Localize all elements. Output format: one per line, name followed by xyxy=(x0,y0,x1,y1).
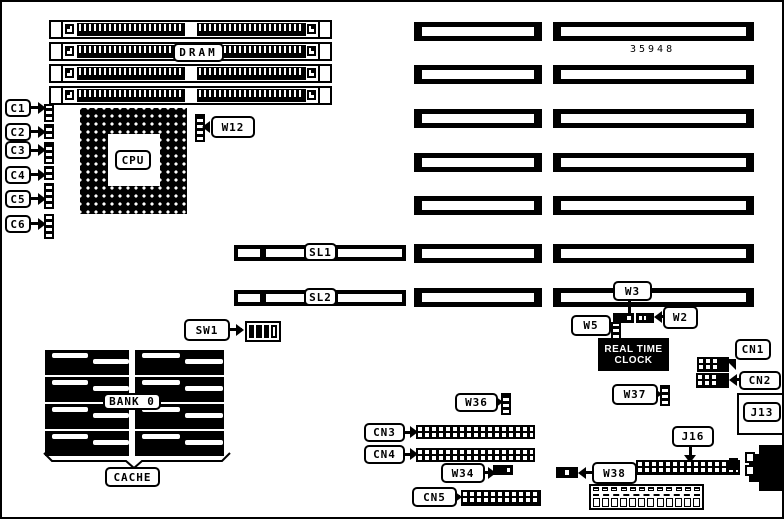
simm-socket-1 xyxy=(49,20,332,39)
simm-latch-icon xyxy=(307,24,316,34)
simm-pin-comb xyxy=(197,23,306,36)
simm-pin-comb xyxy=(77,67,185,80)
dram-label: DRAM xyxy=(173,43,224,62)
w37-label: W37 xyxy=(612,384,658,405)
cn3-label: CN3 xyxy=(364,423,405,442)
expansion-slot xyxy=(553,288,754,307)
simm-pin-comb xyxy=(197,89,306,102)
simm-latch-icon xyxy=(307,90,316,100)
power-connector xyxy=(589,484,704,510)
simm-pin-comb xyxy=(77,23,185,36)
simm-latch-icon xyxy=(65,24,74,34)
real-time-clock: REAL TIME CLOCK xyxy=(598,338,669,371)
w5-label: W5 xyxy=(571,315,611,336)
c5-label: C5 xyxy=(5,190,31,208)
c1-label: C1 xyxy=(5,99,31,117)
simm-latch-icon xyxy=(65,46,74,56)
dip-switch-segment xyxy=(271,325,277,338)
expansion-slot xyxy=(414,244,542,263)
cn2-label: CN2 xyxy=(739,371,781,390)
simm-divider xyxy=(318,22,320,37)
simm-latch-icon xyxy=(307,68,316,78)
expansion-slot xyxy=(553,196,754,215)
simm-divider xyxy=(61,88,63,103)
expansion-slot xyxy=(414,65,542,84)
simm-divider xyxy=(318,88,320,103)
pointer-line xyxy=(628,299,631,314)
w2-label: W2 xyxy=(663,306,698,329)
board-component xyxy=(729,458,738,470)
c3-connector xyxy=(44,142,54,164)
c4-connector xyxy=(44,166,54,180)
simm-divider xyxy=(61,22,63,37)
j13-label: J13 xyxy=(743,402,781,422)
simm-pin-comb xyxy=(77,89,185,102)
expansion-slot xyxy=(414,109,542,128)
w12-label: W12 xyxy=(211,116,255,138)
expansion-slot xyxy=(414,288,542,307)
cn4-label: CN4 xyxy=(364,445,405,464)
cn5-header xyxy=(461,490,541,506)
rtc-text-line2: CLOCK xyxy=(614,355,652,366)
motherboard-diagram: DRAM 35948 SL1 SL2 C1 C2 C3 C4 C5 C6 CPU xyxy=(0,0,784,519)
w38-jumper xyxy=(556,467,578,478)
power-pin-row-bottom xyxy=(593,498,700,507)
callout-tip xyxy=(202,121,210,133)
expansion-slot xyxy=(553,22,754,41)
simm-divider xyxy=(318,66,320,81)
j16-label: J16 xyxy=(672,426,714,447)
expansion-slot xyxy=(553,109,754,128)
c6-label: C6 xyxy=(5,215,31,233)
power-connector-divider xyxy=(593,494,700,496)
simm-divider xyxy=(61,66,63,81)
dip-switch-segment xyxy=(256,325,261,338)
c3-label: C3 xyxy=(5,141,31,159)
callout-tip xyxy=(236,324,244,336)
j16-header xyxy=(636,460,740,475)
dip-switch-segment xyxy=(249,325,254,338)
sw1-label: SW1 xyxy=(184,319,230,341)
cpu-label: CPU xyxy=(115,150,151,170)
w37-jumper xyxy=(660,385,670,406)
simm-divider xyxy=(61,44,63,59)
c1-connector xyxy=(44,104,54,122)
c2-connector xyxy=(44,124,54,139)
expansion-slot xyxy=(553,153,754,172)
w3-label: W3 xyxy=(613,281,652,301)
part-number: 35948 xyxy=(630,44,675,55)
cn4-header xyxy=(416,448,535,462)
w36-jumper xyxy=(501,393,511,415)
simm-socket-3 xyxy=(49,64,332,83)
simm-pin-comb xyxy=(77,45,185,58)
cn3-header xyxy=(416,425,535,439)
cn1-header xyxy=(697,357,729,372)
c2-label: C2 xyxy=(5,123,31,141)
expansion-slot xyxy=(414,196,542,215)
expansion-slot xyxy=(414,153,542,172)
simm-pin-comb xyxy=(197,67,306,80)
cache-label: CACHE xyxy=(105,467,160,487)
simm-divider xyxy=(318,44,320,59)
w2-jumper xyxy=(636,313,654,323)
w34-label: W34 xyxy=(441,463,485,483)
rtc-text-line1: REAL TIME xyxy=(604,344,662,355)
cn1-label: CN1 xyxy=(735,339,771,360)
c5-connector xyxy=(44,183,54,209)
simm-latch-icon xyxy=(307,46,316,56)
bank0-label: BANK 0 xyxy=(103,393,161,410)
power-pin-row-top xyxy=(593,487,700,491)
cache-chip xyxy=(45,350,129,375)
dip-switch-segment xyxy=(264,325,269,338)
simm-latch-icon xyxy=(65,68,74,78)
c6-connector xyxy=(44,214,54,239)
w34-jumper xyxy=(493,465,513,475)
expansion-slot xyxy=(553,244,754,263)
cn2-header xyxy=(696,373,729,388)
cache-chip xyxy=(135,350,224,375)
keyboard-connector-pin xyxy=(745,452,755,463)
keyboard-connector-pin xyxy=(745,465,755,476)
sl1-label: SL1 xyxy=(304,243,337,261)
w36-label: W36 xyxy=(455,393,498,412)
expansion-slot xyxy=(414,22,542,41)
c4-label: C4 xyxy=(5,166,31,184)
sl2-label: SL2 xyxy=(304,288,337,306)
expansion-slot xyxy=(553,65,754,84)
cn5-label: CN5 xyxy=(412,487,457,507)
simm-latch-icon xyxy=(65,90,74,100)
w38-label: W38 xyxy=(592,462,637,484)
sw1-dip-switch xyxy=(245,321,281,342)
simm-socket-4 xyxy=(49,86,332,105)
